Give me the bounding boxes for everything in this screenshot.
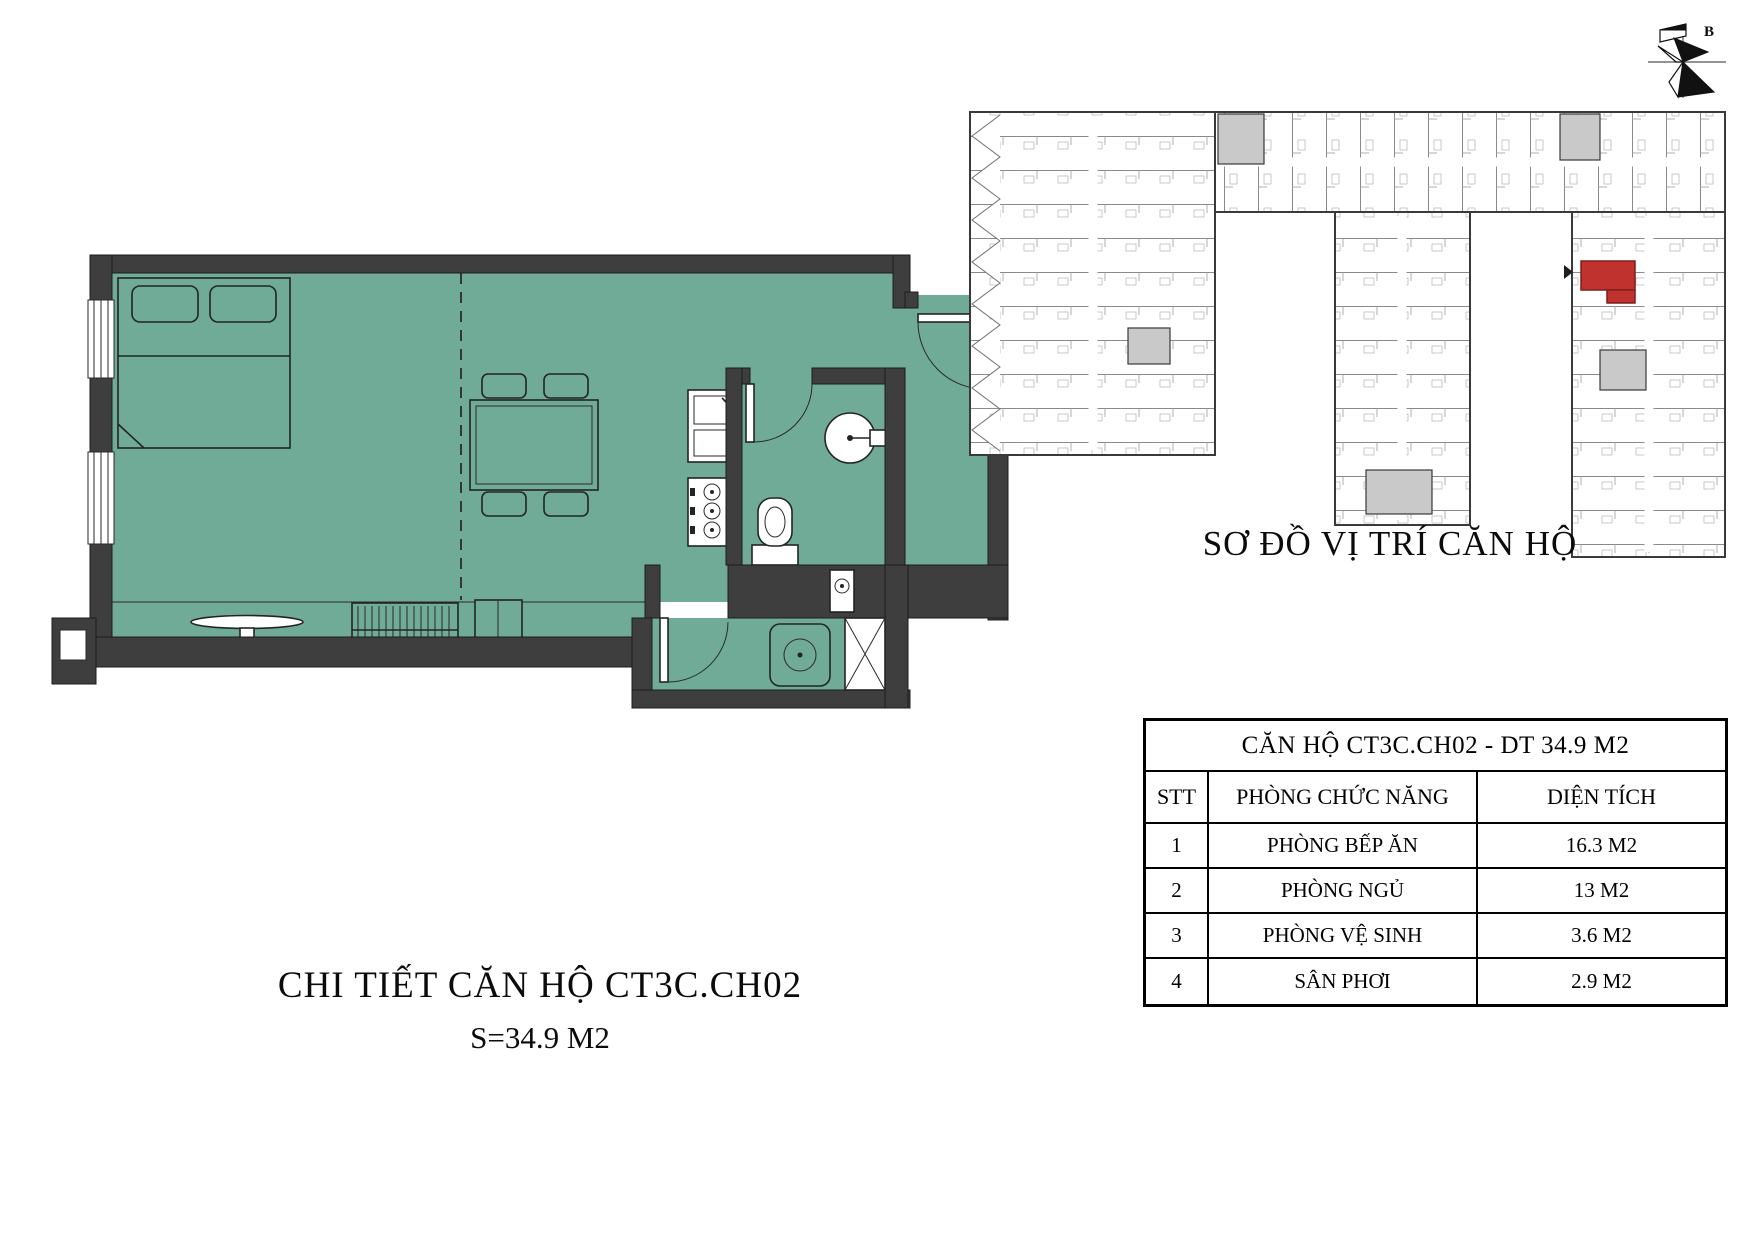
cell-stt: 4 xyxy=(1146,959,1209,1004)
unit-area-table: CĂN HỘ CT3C.CH02 - DT 34.9 M2 STT PHÒNG … xyxy=(1143,718,1728,1007)
stair-core xyxy=(1218,114,1264,164)
cell-area: 16.3 M2 xyxy=(1478,824,1725,869)
overview-title: SƠ ĐỒ VỊ TRÍ CĂN HỘ xyxy=(1150,524,1630,564)
apartment-floor-plan xyxy=(52,255,1008,708)
toilet xyxy=(752,498,798,565)
chair xyxy=(544,374,588,398)
window xyxy=(88,452,114,544)
water-heater xyxy=(770,624,830,686)
stair-core xyxy=(1366,470,1432,514)
bed xyxy=(118,278,290,448)
floor-plan-sheet: { "floor_plan": { "caption": "CHI TIẾT C… xyxy=(0,0,1755,1240)
bathroom-right-wall xyxy=(885,368,905,565)
bathroom-left-wall xyxy=(726,368,742,565)
window xyxy=(88,300,114,378)
building-overview-plan xyxy=(970,112,1725,557)
ledge-notch xyxy=(60,630,86,660)
cell-stt: 2 xyxy=(1146,869,1209,914)
overview-right-wing xyxy=(1564,212,1725,557)
table-row: 2 PHÒNG NGỦ 13 M2 xyxy=(1146,869,1725,914)
yard-bottom-wall xyxy=(632,690,910,708)
cell-room: PHÒNG VỆ SINH xyxy=(1209,914,1478,959)
cabinet xyxy=(475,600,522,640)
vent-grille xyxy=(352,603,458,640)
table-row: 3 PHÒNG VỆ SINH 3.6 M2 xyxy=(1146,914,1725,959)
cell-area: 3.6 M2 xyxy=(1478,914,1725,959)
floor-plan-caption: CHI TIẾT CĂN HỘ CT3C.CH02 xyxy=(240,964,840,1007)
counter-sink xyxy=(830,570,854,612)
highlighted-unit-ct3c-ch02 xyxy=(1581,261,1635,290)
cell-area: 2.9 M2 xyxy=(1478,959,1725,1004)
header-stt: STT xyxy=(1146,772,1209,824)
floor-plan-area-label: S=34.9 M2 xyxy=(240,1020,840,1056)
table-header-row: STT PHÒNG CHỨC NĂNG DIỆN TÍCH xyxy=(1146,772,1725,824)
cell-room: PHÒNG NGỦ xyxy=(1209,869,1478,914)
cell-stt: 3 xyxy=(1146,914,1209,959)
balcony-ledge xyxy=(55,637,632,667)
technical-shaft xyxy=(845,618,885,690)
chair xyxy=(482,374,526,398)
compass-north-label: B xyxy=(1699,24,1719,41)
table-title: CĂN HỘ CT3C.CH02 - DT 34.9 M2 xyxy=(1146,721,1725,772)
elevator-core xyxy=(1600,350,1646,390)
overview-middle-wing xyxy=(1335,212,1470,525)
chair xyxy=(544,492,588,516)
counter-wall xyxy=(728,565,1008,618)
chair xyxy=(482,492,526,516)
header-area: DIỆN TÍCH xyxy=(1478,772,1725,824)
cell-stt: 1 xyxy=(1146,824,1209,869)
stair-core xyxy=(1128,328,1170,364)
top-wall xyxy=(90,255,910,273)
bathroom-top-wall xyxy=(812,368,890,384)
pillow xyxy=(132,286,198,322)
table-row: 1 PHÒNG BẾP ĂN 16.3 M2 xyxy=(1146,824,1725,869)
highlighted-unit-extension xyxy=(1607,290,1635,303)
counter-wall xyxy=(645,565,660,618)
table-row: 4 SÂN PHƠI 2.9 M2 xyxy=(1146,959,1725,1004)
cell-room: SÂN PHƠI xyxy=(1209,959,1478,1004)
header-room: PHÒNG CHỨC NĂNG xyxy=(1209,772,1478,824)
cell-room: PHÒNG BẾP ĂN xyxy=(1209,824,1478,869)
yard-right-wall xyxy=(885,565,908,708)
stair-core xyxy=(1560,114,1600,160)
entry-wall-stub xyxy=(905,292,918,308)
pillow xyxy=(210,286,276,322)
overview-left-wing xyxy=(970,112,1215,455)
cell-area: 13 M2 xyxy=(1478,869,1725,914)
